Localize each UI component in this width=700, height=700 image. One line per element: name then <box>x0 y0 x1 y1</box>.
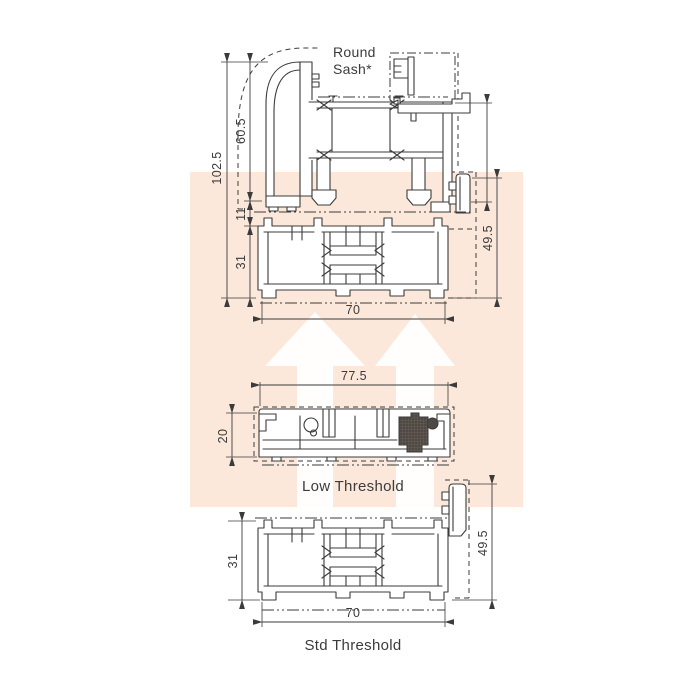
technical-drawing-canvas: Round Sash* 102.5 60.5 11 31 70 49.5 <box>0 0 700 700</box>
gasket-bulb <box>427 418 438 429</box>
low-threshold-label: Low Threshold <box>302 478 404 495</box>
dim-sash-height: 60.5 <box>234 118 248 144</box>
threshold-drawing-page: Round Sash* 102.5 60.5 11 31 70 49.5 <box>0 0 700 700</box>
dim-std-width: 70 <box>346 606 361 620</box>
dim-std-upstand-height: 49.5 <box>476 530 490 556</box>
low-threshold-profile <box>259 409 450 461</box>
std-threshold-profile <box>258 520 448 600</box>
dim-upstand-height: 49.5 <box>481 225 495 251</box>
outer-frame-threshold-profile <box>258 218 448 298</box>
std-threshold-label: Std Threshold <box>304 637 401 654</box>
dim-low-height: 20 <box>216 429 230 444</box>
dim-low-width: 77.5 <box>341 369 367 383</box>
round-sash-note-line1: Round <box>333 44 376 60</box>
round-sash-note-line2: Sash* <box>333 61 372 77</box>
dim-overall-height: 102.5 <box>210 151 224 184</box>
dim-base-height: 31 <box>234 255 248 270</box>
dim-mid-gap: 11 <box>234 207 248 221</box>
dim-base-width: 70 <box>346 303 361 317</box>
dim-std-height: 31 <box>226 554 240 569</box>
